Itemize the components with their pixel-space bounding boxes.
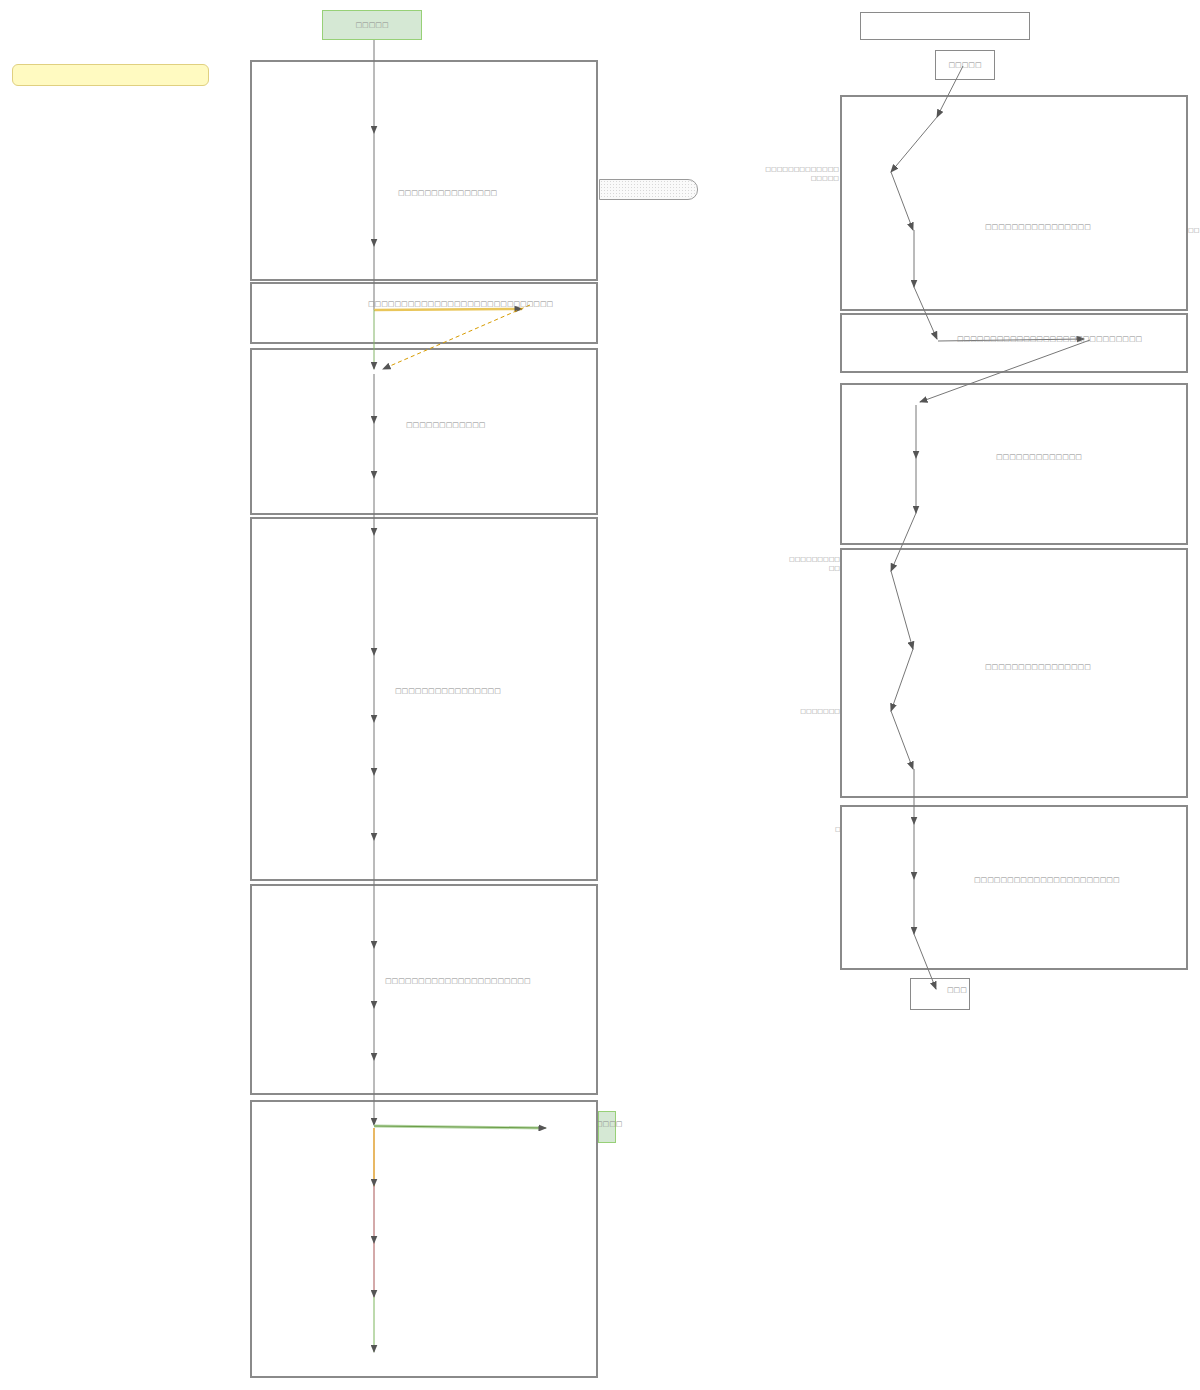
right-band-label: □□□□□□□□□□□□□□□□□□□□□□□□□□□□: [957, 335, 1142, 343]
right-start-label: □□□□□: [948, 61, 981, 69]
left-box1-label: □□□□□□□□□□□□□□□: [398, 189, 497, 197]
right-end-node: [910, 978, 970, 1010]
left-process-box-1: [250, 60, 598, 281]
collapsed-note-tab: [599, 179, 698, 200]
right-process-box-1: [840, 95, 1188, 311]
left-band-box-2: [250, 282, 598, 344]
right-box1-label: □□□□□□□□□□□□□□□□: [985, 223, 1091, 231]
right-header-box: [860, 12, 1030, 40]
left-box5-label: □□□□□□□□□□□□□□□□□□□□□□: [385, 977, 531, 985]
flowchart-canvas: □□□□□ □□□□□□□□□□□□□□□ □□□□□□□□□□□□□□□□□□…: [0, 0, 1200, 1390]
left-process-box-3: [250, 348, 598, 515]
left-process-box-5: [250, 884, 598, 1095]
right-side-annotation-d: □: [835, 825, 841, 834]
right-side-annotation-a: □□□□□□□□□□□□□ □□□□□: [760, 165, 839, 182]
right-edge-clipped-label: □□: [1188, 226, 1199, 235]
right-side-annotation-c: □□□□□□□: [760, 707, 840, 716]
right-end-label: □□□: [947, 986, 967, 994]
left-process-box-6: [250, 1100, 598, 1378]
left-band-label: □□□□□□□□□□□□□□□□□□□□□□□□□□□□: [368, 300, 553, 308]
sticky-note: [12, 64, 209, 86]
right-process-box-3: [840, 383, 1188, 545]
left-box4-label: □□□□□□□□□□□□□□□□: [395, 687, 501, 695]
right-box5-label: □□□□□□□□□□□□□□□□□□□□□□: [974, 876, 1120, 884]
left-start-node: □□□□□: [322, 10, 422, 40]
right-band-box-2: [840, 313, 1188, 373]
right-process-box-5: [840, 805, 1188, 970]
right-side-annotation-a-line1: □□□□□□□□□□□□□: [760, 165, 839, 174]
green-tag-label: □□□□: [596, 1120, 622, 1128]
right-side-annotation-b-line2: □□: [760, 564, 840, 573]
left-start-label: □□□□□: [355, 21, 388, 29]
right-box3-label: □□□□□□□□□□□□□: [996, 453, 1082, 461]
right-process-box-4: [840, 548, 1188, 798]
right-side-annotation-b-line1: □□□□□□□□□: [760, 555, 840, 564]
right-box4-label: □□□□□□□□□□□□□□□□: [985, 663, 1091, 671]
left-box3-label: □□□□□□□□□□□□: [406, 421, 485, 429]
left-process-box-4: [250, 517, 598, 881]
right-side-annotation-b: □□□□□□□□□ □□: [760, 555, 840, 572]
right-start-node: □□□□□: [935, 50, 995, 80]
right-side-annotation-a-line2: □□□□□: [760, 174, 839, 183]
